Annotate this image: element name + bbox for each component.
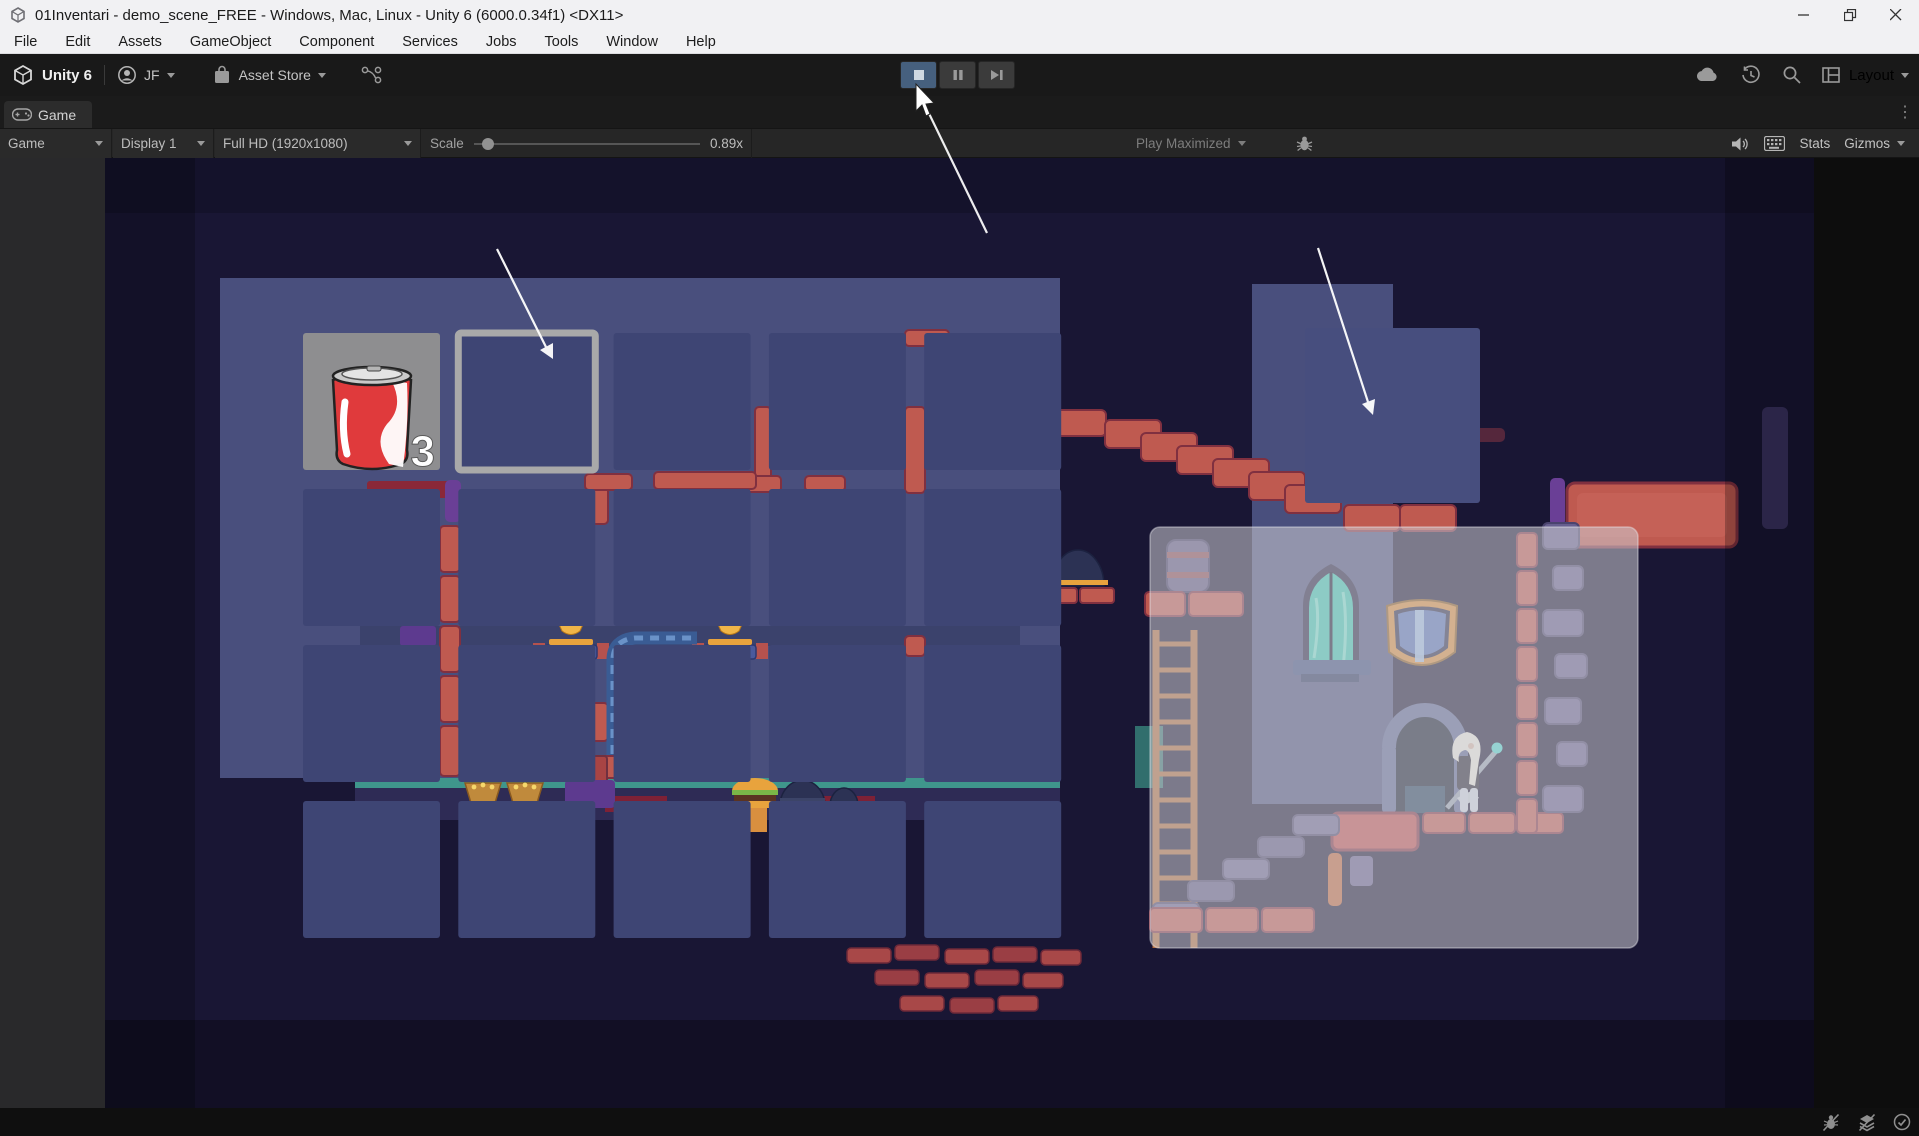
inventory-slot[interactable]	[458, 645, 595, 782]
inventory-slot[interactable]	[614, 645, 751, 782]
scale-slider-knob[interactable]	[482, 138, 494, 150]
inventory-slot[interactable]	[924, 489, 1061, 626]
layers-disabled-icon[interactable]	[1857, 1112, 1877, 1132]
tab-game[interactable]: Game	[4, 101, 92, 128]
inventory-slot[interactable]	[303, 489, 440, 626]
layout-icon	[1822, 67, 1841, 84]
scale-value: 0.89x	[710, 136, 743, 151]
debug-bug-icon[interactable]	[1288, 129, 1321, 158]
maximize-button[interactable]	[1827, 0, 1873, 30]
menu-window[interactable]: Window	[592, 34, 672, 50]
menu-assets[interactable]: Assets	[104, 34, 176, 50]
item-count-badge: 3	[411, 427, 435, 476]
history-icon[interactable]	[1740, 65, 1762, 85]
play-maximized-dropdown[interactable]: Play Maximized	[1128, 129, 1254, 158]
pause-button[interactable]	[939, 61, 976, 89]
cloud-icon[interactable]	[1694, 66, 1720, 84]
inventory-slot[interactable]	[458, 801, 595, 938]
tab-game-label: Game	[38, 107, 76, 123]
detail-panel-overlay	[1150, 527, 1638, 948]
inventory-slot[interactable]	[614, 489, 751, 626]
menu-component[interactable]: Component	[285, 34, 388, 50]
minimize-button[interactable]	[1781, 0, 1827, 30]
inventory-slot[interactable]	[769, 645, 906, 782]
layout-caret	[1901, 73, 1909, 78]
inventory-slot[interactable]	[769, 333, 906, 470]
tab-row: Game ⋮	[0, 96, 1919, 128]
search-icon[interactable]	[1782, 65, 1802, 85]
layout-label: Layout	[1849, 67, 1894, 84]
game-view-toolbar: Game Display 1 Full HD (1920x1080) Scale…	[0, 128, 1919, 158]
scale-slider[interactable]	[474, 143, 700, 145]
inventory-slot[interactable]	[458, 489, 595, 626]
resolution-dropdown[interactable]: Full HD (1920x1080)	[215, 129, 421, 158]
menu-tools[interactable]: Tools	[531, 34, 593, 50]
view-target-dropdown[interactable]: Game	[0, 129, 112, 158]
inventory-slot[interactable]	[614, 801, 751, 938]
mute-audio-icon[interactable]	[1731, 136, 1750, 152]
asset-store-bag-icon	[213, 65, 231, 85]
window-titlebar: 01Inventari - demo_scene_FREE - Windows,…	[0, 0, 1919, 30]
unity-logo-icon	[12, 64, 34, 86]
asset-store-label[interactable]: Asset Store	[239, 67, 311, 83]
close-button[interactable]	[1873, 0, 1919, 30]
scale-label: Scale	[430, 136, 464, 151]
inventory-drop-slot[interactable]	[1305, 328, 1480, 503]
menu-help[interactable]: Help	[672, 34, 730, 50]
menu-jobs[interactable]: Jobs	[472, 34, 531, 50]
game-scene: 3	[105, 158, 1814, 1108]
product-name: Unity 6	[42, 67, 92, 84]
stop-button[interactable]	[900, 61, 937, 89]
account-icon	[117, 65, 137, 85]
asset-store-caret[interactable]	[318, 73, 326, 78]
purple-pillar	[1550, 478, 1565, 526]
gizmos-dropdown[interactable]: Gizmos	[1844, 136, 1905, 151]
menubar: File Edit Assets GameObject Component Se…	[0, 30, 1919, 54]
inventory-slot[interactable]	[769, 489, 906, 626]
menu-services[interactable]: Services	[388, 34, 472, 50]
window-title: 01Inventari - demo_scene_FREE - Windows,…	[35, 7, 623, 24]
account-name[interactable]: JF	[144, 67, 160, 83]
inventory-slot[interactable]	[924, 645, 1061, 782]
inventory-slot[interactable]	[614, 333, 751, 470]
game-view: 3	[0, 158, 1919, 1108]
inventory-slot[interactable]	[769, 801, 906, 938]
version-control-icon[interactable]	[360, 65, 384, 85]
scale-control: Scale 0.89x	[422, 129, 752, 158]
menu-edit[interactable]: Edit	[51, 34, 104, 50]
display-dropdown[interactable]: Display 1	[113, 129, 214, 158]
menu-gameobject[interactable]: GameObject	[176, 34, 285, 50]
vsync-grid-icon[interactable]	[1764, 136, 1785, 151]
account-caret[interactable]	[167, 73, 175, 78]
inventory-slot[interactable]	[458, 333, 595, 470]
stats-toggle[interactable]: Stats	[1799, 136, 1830, 151]
step-button[interactable]	[978, 61, 1015, 89]
ok-status-icon[interactable]	[1893, 1113, 1911, 1131]
debugger-disabled-icon[interactable]	[1821, 1112, 1841, 1132]
inventory-slot[interactable]	[924, 801, 1061, 938]
status-bar	[0, 1108, 1919, 1136]
menu-file[interactable]: File	[0, 34, 51, 50]
game-render-surface[interactable]: 3	[105, 158, 1814, 1108]
inventory-slot[interactable]	[303, 645, 440, 782]
game-toolbar-right: Stats Gizmos	[1731, 129, 1905, 158]
play-controls	[900, 61, 1015, 89]
unity-app-icon	[9, 6, 27, 24]
gamepad-icon	[12, 108, 32, 121]
divider	[104, 65, 105, 85]
inventory-slot[interactable]	[924, 333, 1061, 470]
toolbar-right: Layout	[1694, 54, 1909, 96]
layout-dropdown[interactable]: Layout	[1822, 67, 1909, 84]
tab-overflow-menu[interactable]: ⋮	[1897, 102, 1913, 122]
left-panel-strip	[0, 158, 105, 1108]
inventory-slot[interactable]	[303, 801, 440, 938]
